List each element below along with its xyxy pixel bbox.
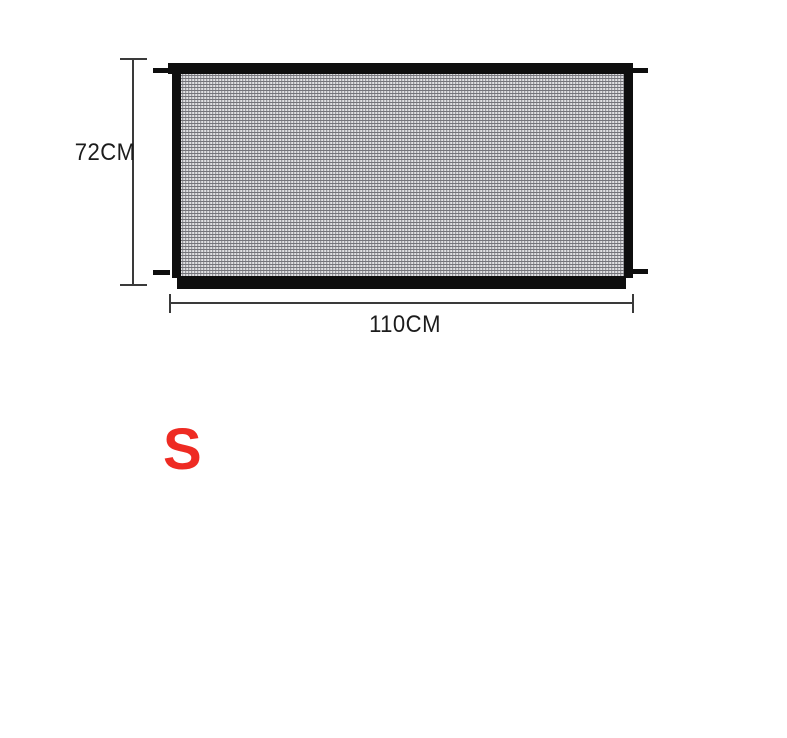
width-dimension-label: 110CM [336,313,474,337]
gate-frame-top-bar [168,63,633,74]
gate-mount-pin-bottom-right [631,269,648,274]
gate-mount-pin-top-right [631,68,648,73]
height-dimension-label: 72CM [75,141,130,165]
height-dimension-cap-bottom [120,284,147,286]
gate-mount-pin-bottom-left [153,270,170,275]
product-image-canvas: 72CM 110CM S [0,0,787,738]
size-option-label: S [163,421,202,479]
gate-frame-right-post [624,63,633,278]
gate-frame-left-post [172,63,181,278]
width-dimension-cap-right [632,294,634,313]
height-dimension-line [132,59,134,286]
gate-mesh-panel [181,74,624,277]
width-dimension-line [170,302,634,304]
gate-frame-bottom-bar [177,276,626,289]
